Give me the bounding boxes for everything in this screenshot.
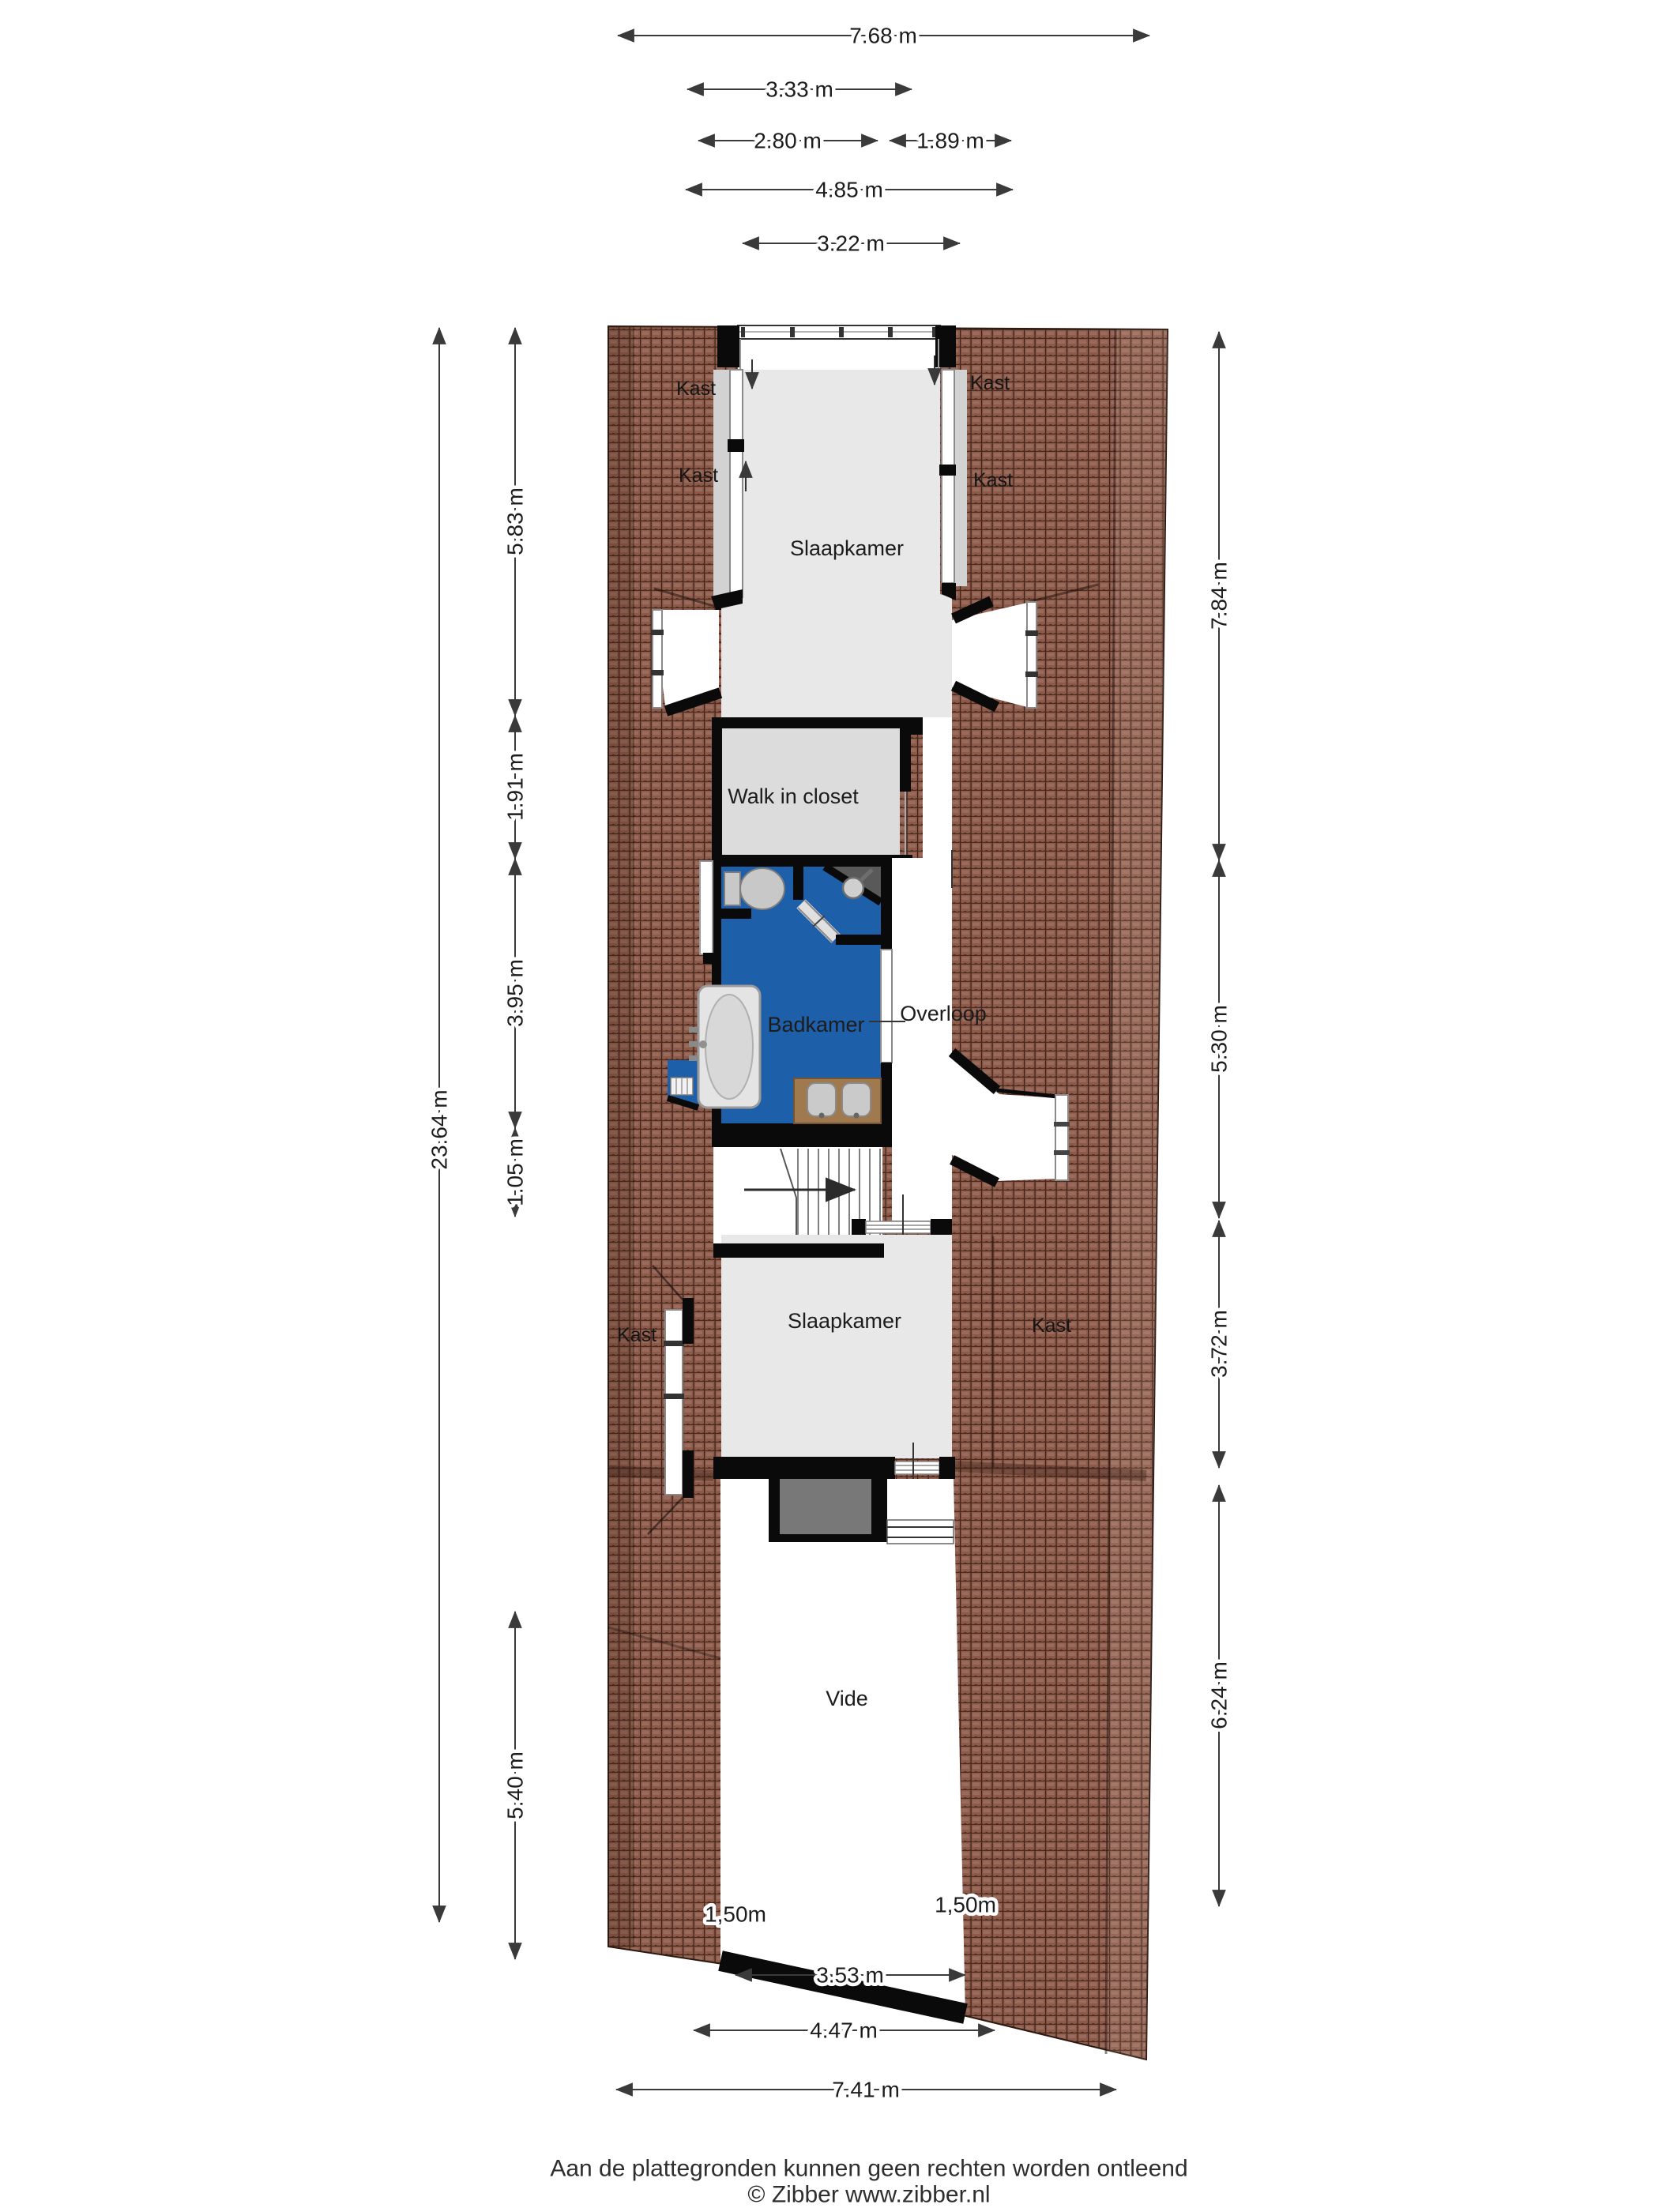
room-label-kast-3: Kast — [970, 372, 1010, 394]
window-mullion — [651, 670, 664, 675]
footer-copyright: © Zibber www.zibber.nl — [747, 2182, 990, 2208]
wall — [939, 1457, 955, 1479]
shower-head-icon — [843, 878, 863, 898]
alcove-window-right — [1027, 602, 1036, 708]
toilet-icon — [724, 868, 784, 909]
room-label-slaapkamer-top: Slaapkamer — [790, 536, 904, 560]
wall-right — [900, 728, 911, 792]
floorplan-canvas: Slaapkamer Kast Kast Kast Kast Walk in c… — [0, 0, 1659, 2212]
room-label-vide: Vide — [826, 1687, 868, 1710]
room-label-kast-1: Kast — [676, 378, 716, 400]
wall-right-upper — [881, 858, 892, 950]
dim-label: 1.89 m — [916, 129, 984, 153]
dim-label: 1.91 m — [503, 753, 528, 821]
room-label-kast-5: Kast — [617, 1324, 656, 1346]
door-divider — [664, 1394, 684, 1399]
roof-left-edge-shade — [608, 326, 634, 1947]
closet-door-track-left — [730, 370, 743, 597]
dim-label: 3.72 m — [1207, 1310, 1232, 1378]
shaft-interior — [780, 1479, 871, 1534]
wall-bottom — [712, 1123, 892, 1147]
window-band — [887, 1520, 954, 1544]
dim-label: 3.33 m — [766, 77, 833, 102]
dim-label: 7.41 m — [832, 2078, 900, 2102]
sink-counter-icon — [794, 1078, 881, 1123]
dim-label: 4.85 m — [815, 178, 883, 202]
window-mullion — [1054, 1150, 1070, 1155]
window-sill-area — [738, 337, 940, 370]
vide-floor — [720, 1479, 965, 2015]
dim-label: 1,50m — [935, 1893, 996, 1917]
wall — [713, 717, 906, 728]
closet-door-track-left — [665, 1310, 683, 1495]
wall-below-stairs — [713, 1243, 884, 1258]
bedroom-bottom-floor — [721, 1235, 952, 1458]
dimensions-left: 23.64 m 5.83 m 1.91 m 3.95 m 1.05 m 5.40… — [427, 328, 528, 1959]
dim-label: 4.47 m — [810, 2018, 878, 2043]
room-label-kast-6: Kast — [1032, 1315, 1071, 1337]
footer-disclaimer: Aan de plattegronden kunnen geen rechten… — [550, 2156, 1187, 2182]
dim-label: 3.22 m — [817, 231, 885, 256]
dim-label: 5.40 m — [503, 1751, 528, 1819]
closet-door-track — [700, 861, 713, 954]
shower-wall-bottom — [836, 935, 881, 945]
dim-label: 23.64 m — [427, 1089, 452, 1169]
dimensions-top: 7.68 m 3.33 m 2.80 m 1.89 m 4.85 m 3.22 … — [618, 24, 1149, 256]
closet-door-track-right — [942, 370, 954, 583]
bathroom: Badkamer — [668, 858, 905, 1147]
window-mullion — [651, 630, 664, 635]
dim-label: 7.84 m — [1207, 562, 1232, 630]
wall-stub — [683, 1298, 694, 1344]
bathtub-icon — [689, 986, 760, 1108]
radiator-icon — [671, 1078, 693, 1095]
sliding-door-rails — [895, 1461, 939, 1474]
dim-label: 3.53 m — [816, 1963, 884, 1988]
room-label-walk-in-closet: Walk in closet — [728, 784, 859, 808]
dormer-window — [1055, 1095, 1068, 1180]
dim-label: 1.05 m — [503, 1138, 528, 1206]
wall-stub — [703, 953, 717, 964]
room-label-overloop: Overloop — [900, 1002, 987, 1025]
closet-door-divider-left — [728, 439, 744, 452]
shower-wall — [793, 867, 803, 900]
footer: Aan de plattegronden kunnen geen rechten… — [550, 2156, 1187, 2208]
dim-label: 2.80 m — [754, 129, 822, 153]
closet-door-divider-right — [939, 465, 956, 476]
alcove-window-left — [653, 610, 662, 708]
vide: Vide — [720, 1474, 965, 2015]
window-mullion — [1025, 671, 1038, 677]
window-mullion — [1025, 630, 1038, 636]
overloop-corridor — [892, 858, 952, 1221]
door-divider — [664, 1341, 684, 1346]
roof-right-edge-shade — [1106, 329, 1168, 2060]
roof-seam-left — [608, 1471, 713, 1476]
dim-label: 1,50m — [705, 1902, 766, 1927]
wall-right-lower — [881, 1063, 892, 1128]
dim-label: 6.24 m — [1207, 1661, 1232, 1729]
wall — [852, 1219, 866, 1235]
toilet-partition-wall — [721, 908, 751, 919]
glass-wall — [881, 950, 892, 1063]
dim-label: 5.83 m — [503, 487, 528, 555]
dim-label: 7.68 m — [849, 24, 917, 48]
wall-corner-block-left — [717, 325, 739, 367]
sliding-door-rails — [866, 1221, 931, 1233]
overloop-corridor-top — [923, 717, 952, 860]
window-mullion — [1054, 1122, 1070, 1127]
wall — [931, 1219, 952, 1235]
room-label-kast-2: Kast — [679, 465, 718, 487]
dim-label: 5.30 m — [1207, 1005, 1232, 1073]
dim-label: 3.95 m — [503, 959, 528, 1027]
wall-stub — [683, 1450, 694, 1498]
room-label-badkamer: Badkamer — [767, 1013, 864, 1036]
room-label-kast-4: Kast — [973, 469, 1013, 491]
dimensions-right: 7.84 m 5.30 m 3.72 m 6.24 m — [1207, 332, 1232, 1906]
floorplan-page: Slaapkamer Kast Kast Kast Kast Walk in c… — [0, 0, 1659, 2212]
room-label-slaapkamer-bottom: Slaapkamer — [788, 1309, 901, 1333]
